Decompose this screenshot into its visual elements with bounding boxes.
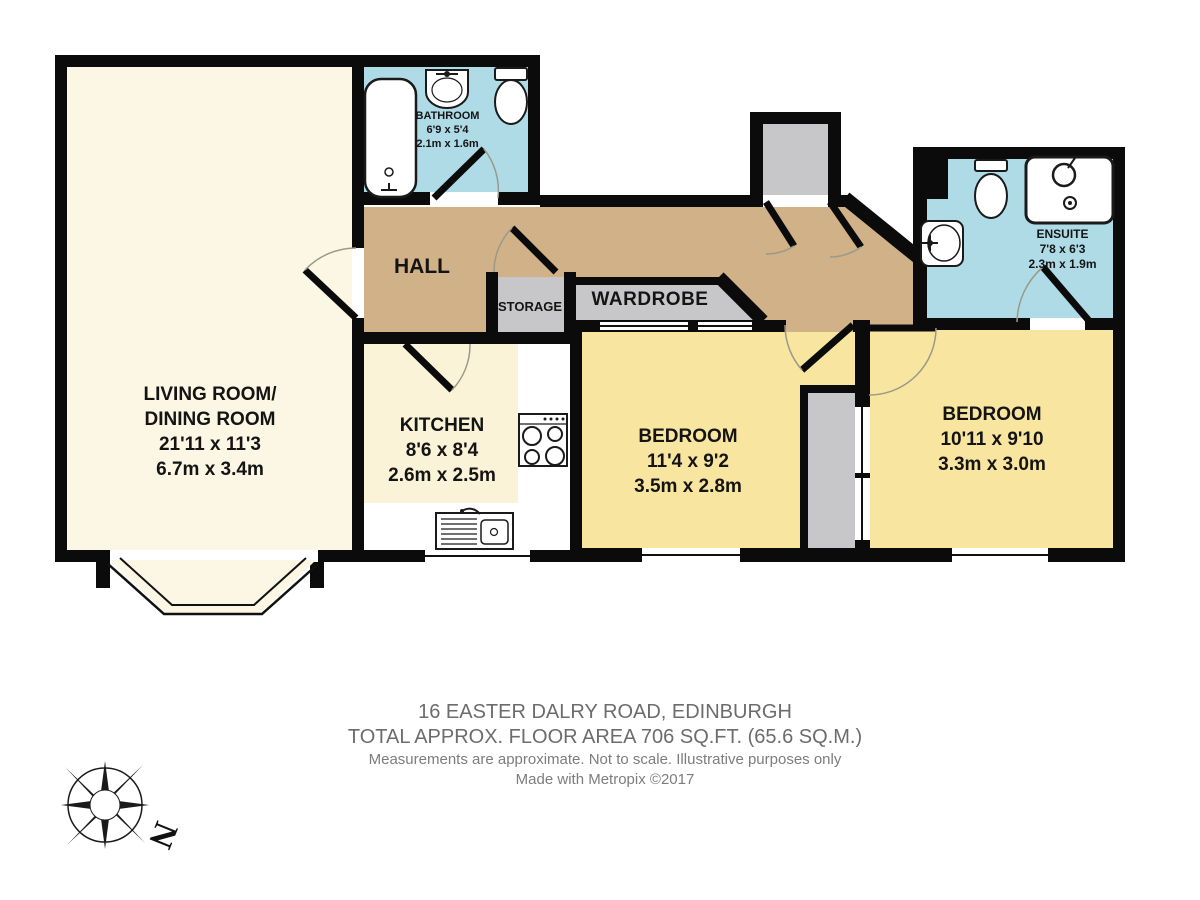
footer: 16 EASTER DALRY ROAD, EDINBURGH TOTAL AP… xyxy=(150,700,1060,790)
room-name: ENSUITE xyxy=(1005,227,1120,242)
room-dim-imperial: 8'6 x 8'4 xyxy=(364,438,520,463)
shower-icon xyxy=(1026,157,1113,223)
disclaimer-line: Measurements are approximate. Not to sca… xyxy=(150,750,1060,770)
storage-door xyxy=(494,228,556,272)
room-dim-metric: 3.5m x 2.8m xyxy=(608,474,768,499)
room-name: KITCHEN xyxy=(364,413,520,438)
ensuite-toilet-icon xyxy=(975,160,1007,218)
bedroom1-door xyxy=(785,325,853,370)
ensuite-basin-icon xyxy=(921,221,963,266)
room-dim-imperial: 6'9 x 5'4 xyxy=(390,123,505,137)
room-name: BEDROOM xyxy=(608,424,768,449)
floor-area-line: TOTAL APPROX. FLOOR AREA 706 SQ.FT. (65.… xyxy=(150,725,1060,750)
address-line: 16 EASTER DALRY ROAD, EDINBURGH xyxy=(150,700,1060,725)
bedroom2-label: BEDROOM 10'11 x 9'10 3.3m x 3.0m xyxy=(912,402,1072,477)
bay-window xyxy=(108,558,318,614)
ensuite-label: ENSUITE 7'8 x 6'3 2.3m x 1.9m xyxy=(1005,227,1120,272)
room-dim-imperial: 7'8 x 6'3 xyxy=(1005,242,1120,257)
room-dim-metric: 3.3m x 3.0m xyxy=(912,452,1072,477)
room-dim-metric: 2.1m x 1.6m xyxy=(390,137,505,151)
hall-label: HALL xyxy=(372,255,472,279)
kitchen-door xyxy=(405,344,470,390)
bedroom2-door xyxy=(869,328,936,395)
room-dim-imperial: 11'4 x 9'2 xyxy=(608,449,768,474)
kitchen-label: KITCHEN 8'6 x 8'4 2.6m x 2.5m xyxy=(364,413,520,488)
bathroom-door xyxy=(434,149,498,198)
room-dim-metric: 6.7m x 3.4m xyxy=(85,457,335,482)
storage-label: STORAGE xyxy=(490,299,570,314)
room-name: BATHROOM xyxy=(390,109,505,123)
room-name: BEDROOM xyxy=(912,402,1072,427)
room-dim-metric: 2.3m x 1.9m xyxy=(1005,257,1120,272)
bathroom-basin-icon xyxy=(426,70,468,108)
diagonal-wall xyxy=(719,277,763,321)
room-name: DINING ROOM xyxy=(85,407,335,432)
room-dim-imperial: 10'11 x 9'10 xyxy=(912,427,1072,452)
ensuite-door xyxy=(1017,267,1090,322)
bedroom1-label: BEDROOM 11'4 x 9'2 3.5m x 2.8m xyxy=(608,424,768,499)
hob-icon xyxy=(519,414,567,466)
bathroom-label: BATHROOM 6'9 x 5'4 2.1m x 1.6m xyxy=(390,109,505,151)
living-room-door xyxy=(305,248,356,318)
compass-north-label: N xyxy=(141,817,185,854)
credit-line: Made with Metropix ©2017 xyxy=(150,770,1060,790)
wardrobe-label: WARDROBE xyxy=(578,289,722,311)
room-dim-imperial: 21'11 x 11'3 xyxy=(85,432,335,457)
sink-icon xyxy=(436,509,513,549)
entrance-door-left xyxy=(766,202,794,254)
floorplan-canvas: N LIVING ROOM/ DINING ROOM 21'11 x 11'3 … xyxy=(0,0,1200,900)
room-name: LIVING ROOM/ xyxy=(85,382,335,407)
living-room-label: LIVING ROOM/ DINING ROOM 21'11 x 11'3 6.… xyxy=(85,382,335,482)
room-dim-metric: 2.6m x 2.5m xyxy=(364,463,520,488)
